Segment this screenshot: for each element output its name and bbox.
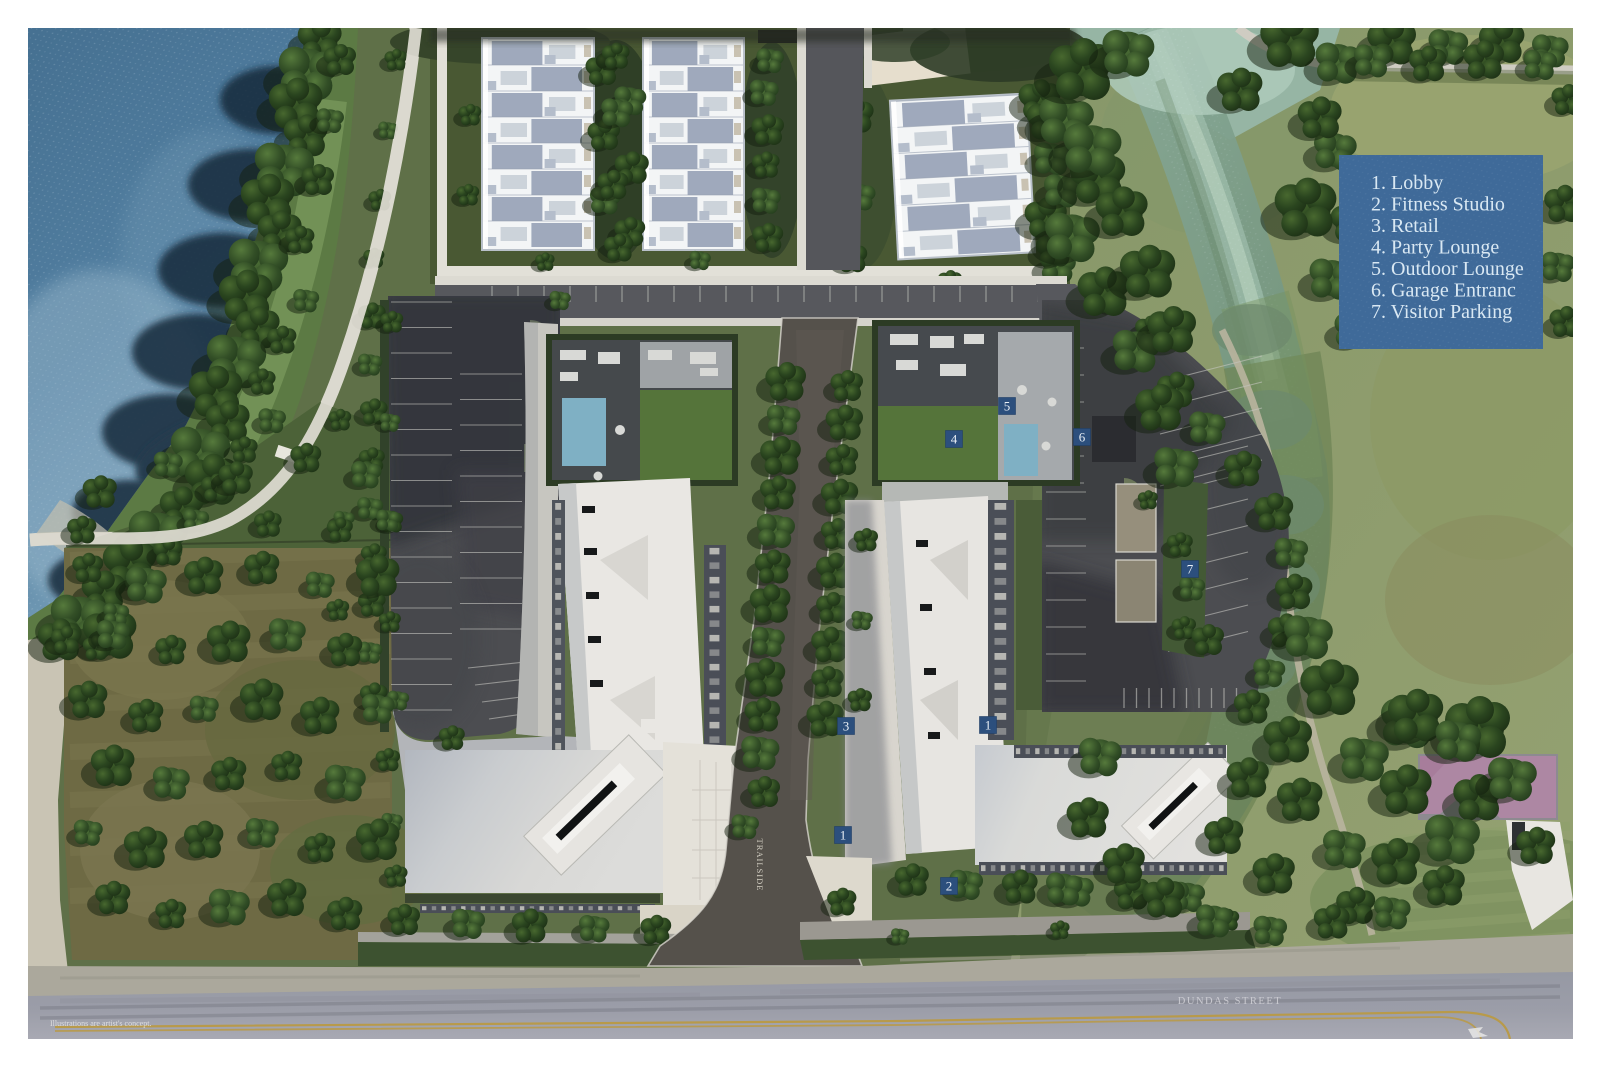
svg-text:2. Fitness Studio: 2. Fitness Studio — [1371, 194, 1505, 216]
svg-text:Illustrations are artist's con: Illustrations are artist's concept. — [50, 1019, 151, 1028]
svg-text:1: 1 — [840, 828, 847, 843]
svg-text:6: 6 — [1079, 430, 1086, 445]
svg-text:1. Lobby: 1. Lobby — [1371, 172, 1443, 194]
svg-text:6. Garage Entranc: 6. Garage Entranc — [1371, 280, 1516, 302]
svg-text:3: 3 — [843, 719, 850, 734]
svg-text:5. Outdoor Lounge: 5. Outdoor Lounge — [1371, 258, 1524, 280]
svg-text:3. Retail: 3. Retail — [1371, 215, 1439, 237]
svg-text:2: 2 — [946, 879, 953, 894]
svg-text:DUNDAS STREET: DUNDAS STREET — [1178, 996, 1282, 1007]
svg-text:TRAILSIDE: TRAILSIDE — [755, 839, 765, 892]
svg-text:1: 1 — [985, 718, 992, 733]
svg-text:4. Party Lounge: 4. Party Lounge — [1371, 237, 1499, 259]
svg-text:5: 5 — [1004, 399, 1011, 414]
svg-text:7: 7 — [1187, 562, 1194, 577]
svg-text:7. Visitor Parking: 7. Visitor Parking — [1371, 301, 1512, 323]
svg-text:4: 4 — [951, 432, 958, 447]
